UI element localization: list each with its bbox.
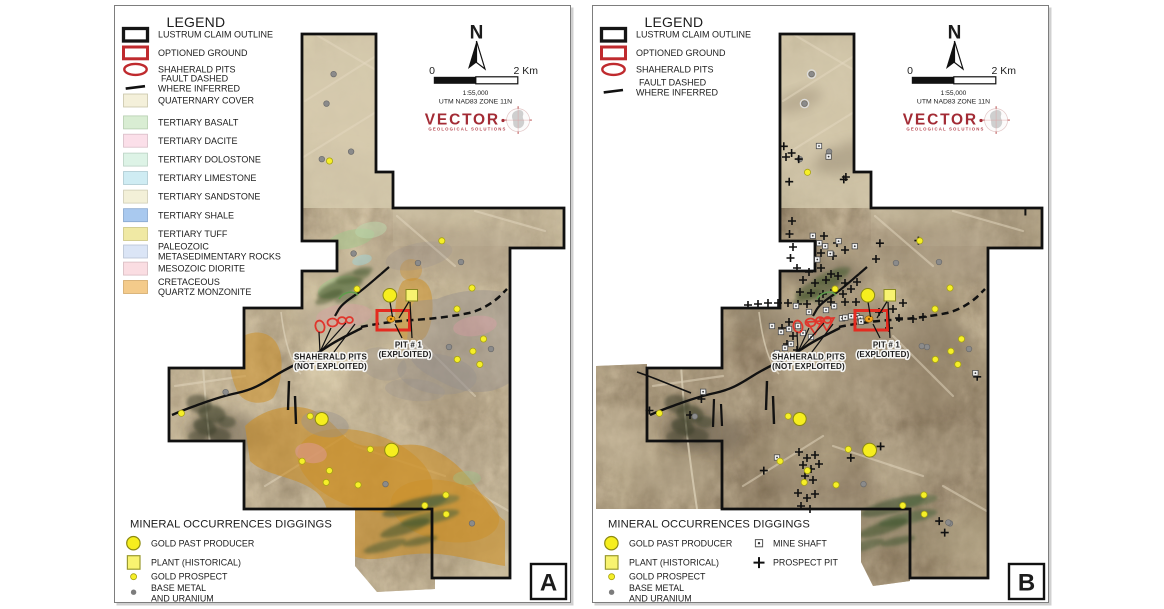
svg-text:OPTIONED GROUND: OPTIONED GROUND <box>636 48 726 58</box>
svg-text:GOLD PROSPECT: GOLD PROSPECT <box>151 572 228 582</box>
svg-text:2 Km: 2 Km <box>992 65 1017 77</box>
svg-text:TERTIARY DOLOSTONE: TERTIARY DOLOSTONE <box>158 155 261 165</box>
svg-text:1:55,000: 1:55,000 <box>463 90 489 97</box>
svg-text:LEGEND: LEGEND <box>167 14 226 30</box>
svg-text:BASE METAL: BASE METAL <box>629 583 684 593</box>
svg-text:UTM NAD83 ZONE 11N: UTM NAD83 ZONE 11N <box>439 99 512 106</box>
svg-text:LEGEND: LEGEND <box>645 14 704 30</box>
svg-text:CRETACEOUS: CRETACEOUS <box>158 277 220 287</box>
svg-text:BASE METAL: BASE METAL <box>151 583 206 593</box>
svg-text:WHERE INFERRED: WHERE INFERRED <box>636 87 719 97</box>
svg-text:PROSPECT PIT: PROSPECT PIT <box>773 558 839 568</box>
svg-text:B: B <box>1018 570 1035 597</box>
svg-text:LUSTRUM CLAIM OUTLINE: LUSTRUM CLAIM OUTLINE <box>158 30 273 40</box>
svg-text:N: N <box>470 23 484 44</box>
svg-text:FAULT DASHED: FAULT DASHED <box>639 78 707 88</box>
svg-text:LUSTRUM CLAIM OUTLINE: LUSTRUM CLAIM OUTLINE <box>636 30 751 40</box>
svg-text:TERTIARY SANDSTONE: TERTIARY SANDSTONE <box>158 192 260 202</box>
svg-text:QUATERNARY COVER: QUATERNARY COVER <box>158 96 255 106</box>
svg-text:(NOT EXPLOITED): (NOT EXPLOITED) <box>772 362 845 371</box>
svg-text:MINERAL OCCURRENCES DIGGINGS: MINERAL OCCURRENCES DIGGINGS <box>608 519 810 531</box>
svg-text:2 Km: 2 Km <box>514 65 539 77</box>
svg-text:GOLD PROSPECT: GOLD PROSPECT <box>629 572 706 582</box>
svg-text:0: 0 <box>429 65 435 77</box>
svg-text:(EXPLOITED): (EXPLOITED) <box>379 350 432 359</box>
svg-text:GEOLOGICAL SOLUTIONS: GEOLOGICAL SOLUTIONS <box>906 127 984 132</box>
svg-text:PLANT (HISTORICAL): PLANT (HISTORICAL) <box>629 558 719 568</box>
svg-text:MINE SHAFT: MINE SHAFT <box>773 538 827 548</box>
svg-text:GOLD PAST PRODUCER: GOLD PAST PRODUCER <box>629 538 732 548</box>
svg-text:TERTIARY BASALT: TERTIARY BASALT <box>158 118 239 128</box>
svg-text:TERTIARY LIMESTONE: TERTIARY LIMESTONE <box>158 173 256 183</box>
svg-text:A: A <box>540 570 557 597</box>
svg-text:TERTIARY DACITE: TERTIARY DACITE <box>158 136 238 146</box>
svg-text:MESOZOIC DIORITE: MESOZOIC DIORITE <box>158 264 245 274</box>
svg-text:OPTIONED GROUND: OPTIONED GROUND <box>158 48 248 58</box>
svg-text:N: N <box>948 23 962 44</box>
svg-text:SHAHERALD PITS: SHAHERALD PITS <box>772 353 845 362</box>
svg-text:AND URANIUM: AND URANIUM <box>151 594 214 602</box>
svg-text:QUARTZ MONZONITE: QUARTZ MONZONITE <box>158 287 251 297</box>
svg-text:SHAHERALD PITS: SHAHERALD PITS <box>636 65 714 75</box>
svg-text:PALEOZOIC: PALEOZOIC <box>158 242 209 252</box>
svg-text:PLANT (HISTORICAL): PLANT (HISTORICAL) <box>151 558 241 568</box>
svg-text:GEOLOGICAL SOLUTIONS: GEOLOGICAL SOLUTIONS <box>428 127 506 132</box>
svg-text:1:55,000: 1:55,000 <box>941 90 967 97</box>
svg-text:(NOT EXPLOITED): (NOT EXPLOITED) <box>294 362 367 371</box>
svg-text:SHAHERALD PITS: SHAHERALD PITS <box>294 353 367 362</box>
svg-text:TERTIARY TUFF: TERTIARY TUFF <box>158 229 228 239</box>
svg-text:UTM NAD83 ZONE 11N: UTM NAD83 ZONE 11N <box>917 99 990 106</box>
svg-text:PIT # 1: PIT # 1 <box>395 341 423 350</box>
svg-text:METASEDIMENTARY ROCKS: METASEDIMENTARY ROCKS <box>158 252 281 262</box>
svg-text:(EXPLOITED): (EXPLOITED) <box>857 350 910 359</box>
svg-text:AND URANIUM: AND URANIUM <box>629 594 692 602</box>
svg-text:WHERE INFERRED: WHERE INFERRED <box>158 84 241 94</box>
svg-text:MINERAL OCCURRENCES DIGGINGS: MINERAL OCCURRENCES DIGGINGS <box>130 519 332 531</box>
svg-text:GOLD PAST PRODUCER: GOLD PAST PRODUCER <box>151 538 254 548</box>
svg-text:PIT # 1: PIT # 1 <box>873 341 901 350</box>
svg-text:0: 0 <box>907 65 913 77</box>
svg-text:FAULT DASHED: FAULT DASHED <box>161 74 229 84</box>
svg-text:TERTIARY SHALE: TERTIARY SHALE <box>158 210 234 220</box>
